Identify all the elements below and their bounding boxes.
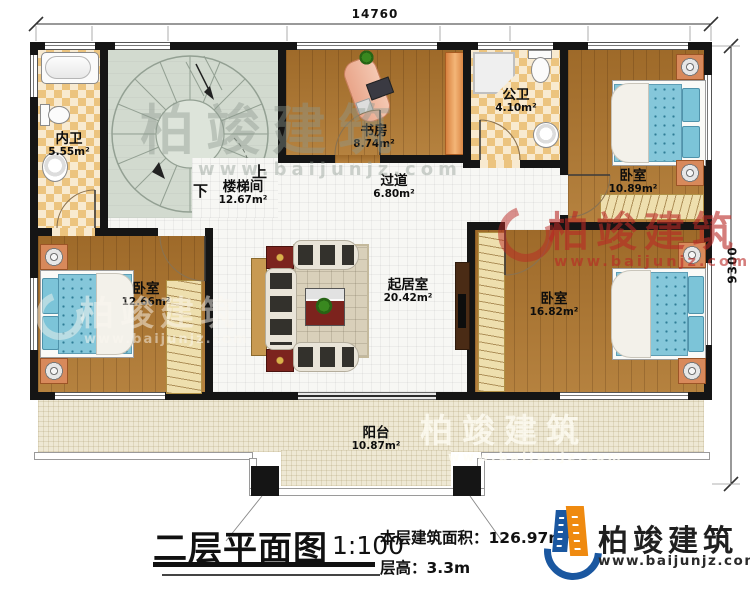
tv	[458, 294, 466, 328]
bed1-duvet	[611, 83, 649, 163]
window-ensuite-left	[30, 55, 38, 97]
end-table-bottom	[266, 349, 294, 372]
floor-area-label: 本层建筑面积：	[380, 529, 489, 547]
threshold-publicbath	[480, 160, 520, 168]
wall-living-bedroom2	[205, 228, 213, 400]
stair-down-label: 下	[193, 180, 208, 201]
bed2-pillow2	[42, 316, 59, 350]
room-name: 过道	[373, 174, 414, 189]
threshold-study	[335, 155, 380, 163]
window-bedroom1-top	[588, 42, 688, 50]
room-area: 10.87m²	[352, 441, 401, 453]
room-label-hallway: 过道 6.80m²	[373, 174, 414, 200]
balcony-railing-center-bottom	[249, 488, 485, 496]
threshold-ensuite	[52, 228, 95, 236]
floor-height-text: 层高：3.3m	[380, 556, 470, 578]
wall-ensuite-stair	[100, 42, 108, 236]
bed3-pillow	[688, 276, 704, 314]
bed2-nightstand-bottom	[40, 358, 68, 384]
end-table-top	[266, 246, 294, 269]
window-publicbath-top	[478, 42, 553, 50]
wall-ensuite-bottom-a	[30, 228, 52, 236]
window-bedroom2-bottom	[55, 392, 165, 400]
room-name: 公卫	[495, 88, 536, 103]
sofa-bottom	[293, 342, 359, 372]
room-name: 内卫	[48, 132, 89, 147]
publicbath-toilet-bowl	[531, 57, 550, 83]
balcony-railing-right	[481, 452, 710, 460]
window-ensuite-top	[45, 42, 95, 50]
bed1-pillow2	[682, 126, 700, 158]
title-underline-thin	[162, 574, 380, 576]
room-name: 卧室	[122, 282, 171, 297]
wall-bedroom3-top-b	[550, 222, 712, 230]
room-area: 20.42m²	[384, 293, 433, 305]
publicbath-sink	[533, 122, 559, 148]
bed1-wardrobe	[600, 194, 704, 220]
window-bedroom2-left	[30, 278, 38, 350]
logo-building-windows	[557, 515, 565, 547]
room-name: 阳台	[352, 426, 401, 441]
balcony-sliding-door	[298, 392, 436, 400]
sofa-left	[265, 268, 297, 350]
room-area: 16.82m²	[530, 307, 579, 319]
room-label-bedroom2: 卧室 12.66m²	[122, 282, 171, 308]
bathtub-basin	[45, 56, 91, 79]
stair-up-label: 上	[252, 161, 267, 182]
room-area: 12.67m²	[219, 195, 268, 207]
room-name: 卧室	[530, 292, 579, 307]
room-label-balcony: 阳台 10.87m²	[352, 426, 401, 452]
sofa-top	[293, 240, 359, 270]
logo-building-orange-icon	[566, 506, 588, 556]
study-cabinet	[445, 52, 465, 155]
sofa-left-cushions	[270, 273, 292, 345]
wall-study-bottom-b	[380, 155, 471, 163]
wall-publicbath-bottom-a	[463, 160, 480, 168]
wall-study-bottom-a	[278, 155, 335, 163]
room-area: 5.55m²	[48, 147, 89, 159]
bed3-wardrobe	[478, 232, 505, 392]
bed1-nightstand-top	[676, 54, 704, 80]
balcony-column-left	[251, 466, 279, 496]
study-plant	[358, 49, 375, 66]
room-name: 楼梯间	[219, 180, 268, 195]
window-bedroom3-bottom	[560, 392, 688, 400]
wall-ensuite-bottom-b	[95, 228, 158, 236]
sofa-top-cushions	[298, 245, 354, 265]
wall-hall-bedroom1-a	[560, 168, 568, 175]
room-name: 卧室	[609, 169, 658, 184]
bed3-nightstand-bottom	[678, 358, 706, 384]
window-stair-top	[115, 42, 170, 50]
bed1-nightstand-bottom	[676, 160, 704, 186]
room-label-ensuite-bath: 内卫 5.55m²	[48, 132, 89, 158]
sofa-bottom-cushions	[298, 347, 354, 367]
balcony-railing-left	[34, 452, 253, 460]
wall-stair-study	[278, 42, 286, 163]
room-label-bedroom3: 卧室 16.82m²	[530, 292, 579, 318]
bed3-nightstand-top	[678, 242, 706, 268]
room-area: 6.80m²	[373, 189, 414, 201]
logo-building-windows	[571, 512, 580, 550]
room-area: 12.66m²	[122, 297, 171, 309]
room-label-stairwell: 楼梯间 12.67m²	[219, 180, 268, 206]
bathtub	[41, 52, 99, 84]
room-area: 8.74m²	[353, 139, 394, 151]
room-label-study: 书房 8.74m²	[353, 124, 394, 150]
ensuite-toilet-bowl	[48, 106, 70, 124]
coffee-table-plant	[314, 296, 334, 316]
bed3-duvet	[611, 270, 651, 358]
dimension-height: 9300	[726, 246, 740, 283]
balcony-floor-center	[281, 450, 451, 486]
floor-plan-page: { "plan": { "rooms": [ {"name": "内卫", "a…	[0, 0, 750, 586]
floor-height-label: 层高：	[380, 559, 427, 577]
room-label-living: 起居室 20.42m²	[384, 278, 433, 304]
bed2-wardrobe	[166, 280, 202, 394]
room-label-bedroom1: 卧室 10.89m²	[609, 169, 658, 195]
dimension-width: 14760	[352, 7, 399, 21]
floor-height-value: 3.3m	[427, 559, 471, 577]
logo-website: www.baijunjz.com	[598, 553, 750, 569]
room-area: 4.10m²	[495, 103, 536, 115]
company-logo: 柏竣建筑 www.baijunjz.com	[540, 504, 748, 584]
room-name: 起居室	[384, 278, 433, 293]
wall-publicbath-bedroom1	[560, 42, 568, 168]
bed3-pillow2	[688, 316, 704, 352]
wall-study-publicbath	[463, 42, 471, 163]
balcony-column-right	[453, 466, 481, 496]
room-label-public-bath: 公卫 4.10m²	[495, 88, 536, 114]
bed2-pillow	[42, 278, 59, 314]
title-underline-thick	[153, 562, 375, 567]
room-area: 10.89m²	[609, 184, 658, 196]
bed1-pillow	[682, 88, 700, 122]
bed2-nightstand-top	[40, 244, 68, 270]
room-name: 书房	[353, 124, 394, 139]
